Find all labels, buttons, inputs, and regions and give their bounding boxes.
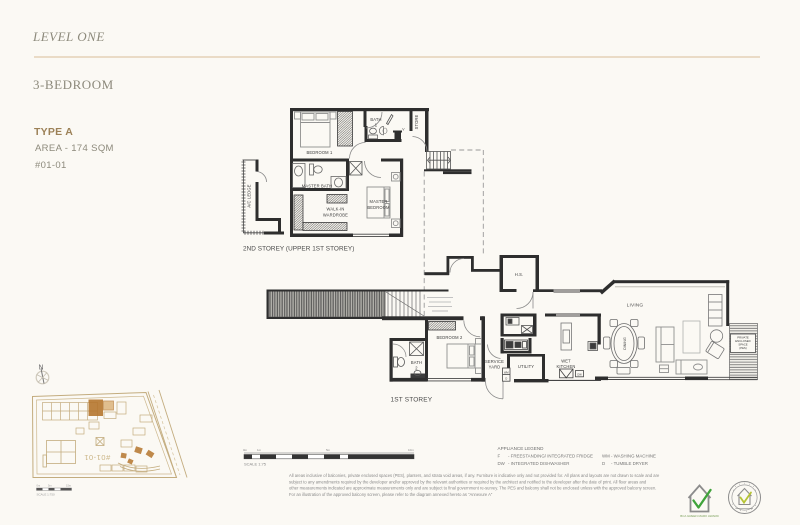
svg-text:MASTER: MASTER [370,199,388,204]
svg-text:2ND STOREY (UPPER 1ST STOREY): 2ND STOREY (UPPER 1ST STOREY) [243,246,354,253]
svg-text:- FREESTANDING/ INTEGRATED FRI: - FREESTANDING/ INTEGRATED FRIDGE [508,453,593,458]
svg-text:WM: WM [602,453,610,458]
svg-text:UTILITY: UTILITY [518,364,534,369]
svg-text:•: • [746,509,747,513]
svg-text:•: • [744,481,745,485]
svg-text:D: D [602,461,605,466]
svg-text:(PES): (PES) [739,346,747,350]
svg-text:15m: 15m [66,484,71,488]
svg-text:•: • [732,502,733,506]
svg-text:5m: 5m [326,448,331,452]
svg-text:DINING: DINING [623,337,627,350]
svg-text:- INTEGRATED DISHWASHER: - INTEGRATED DISHWASHER [508,461,569,466]
svg-text:F: F [498,453,501,458]
svg-text:•: • [733,488,734,492]
svg-text:- WASHING MACHINE: - WASHING MACHINE [611,453,656,458]
svg-text:10m: 10m [408,448,414,452]
svg-text:All areas inclusive of balconi: All areas inclusive of balconies, privat… [289,473,660,478]
svg-text:#01-01: #01-01 [84,453,110,462]
svg-text:•: • [735,485,736,489]
svg-text:SCALE 1:75: SCALE 1:75 [244,462,267,467]
svg-text:A/C LEDGE: A/C LEDGE [247,184,252,207]
svg-text:WALK-IN: WALK-IN [327,207,345,212]
svg-text:2: 2 [415,366,418,371]
svg-text:BCA GREEN MARK AWARD: BCA GREEN MARK AWARD [680,514,719,518]
svg-text:WM: WM [504,370,509,374]
svg-text:•: • [753,485,754,489]
svg-text:•: • [740,509,741,513]
svg-text:LIVING: LIVING [627,303,644,309]
svg-text:- TUMBLE DRYER: - TUMBLE DRYER [611,461,648,466]
svg-text:DW: DW [498,461,506,466]
svg-text:WET: WET [561,359,571,364]
svg-text:YARD: YARD [489,365,501,370]
svg-text:MASTER BATH: MASTER BATH [302,183,332,188]
svg-text:•: • [755,488,756,492]
svg-text:other measurements indicated a: other measurements indicated are approxi… [289,486,656,491]
svg-text:1ST STOREY: 1ST STOREY [391,397,433,404]
svg-text:subject to any amendments requ: subject to any amendments required by th… [289,479,647,484]
svg-text:DW: DW [577,372,582,376]
svg-text:APPLIANCE LEGEND: APPLIANCE LEGEND [498,446,545,451]
svg-text:0m: 0m [243,448,248,452]
svg-text:1m: 1m [257,448,262,452]
svg-text:For an illustration of the app: For an illustration of the approved balc… [289,492,493,497]
svg-text:SERVICE: SERVICE [485,359,504,364]
svg-text:BATH: BATH [411,360,422,365]
svg-text:•: • [755,504,756,508]
svg-text:BEDROOM: BEDROOM [367,205,390,210]
svg-text:V: V [402,128,405,132]
svg-text:BEDROOM 2: BEDROOM 2 [437,335,463,340]
svg-text:0m: 0m [37,484,41,488]
svg-text:5m: 5m [48,484,52,488]
svg-text:BATH: BATH [370,117,381,122]
svg-text:H.S.: H.S. [515,272,524,277]
svg-text:D: D [505,377,507,381]
svg-text:•: • [749,482,750,486]
svg-text:BEDROOM 1: BEDROOM 1 [307,150,333,155]
svg-text:STORE: STORE [414,114,419,129]
svg-text:SCALE 1:750: SCALE 1:750 [37,493,56,497]
svg-text:KITCHEN: KITCHEN [556,364,575,369]
svg-text:WARDROBE: WARDROBE [323,213,348,218]
svg-text:•: • [751,507,752,511]
svg-text:•: • [735,506,736,510]
svg-text:•: • [739,482,740,486]
